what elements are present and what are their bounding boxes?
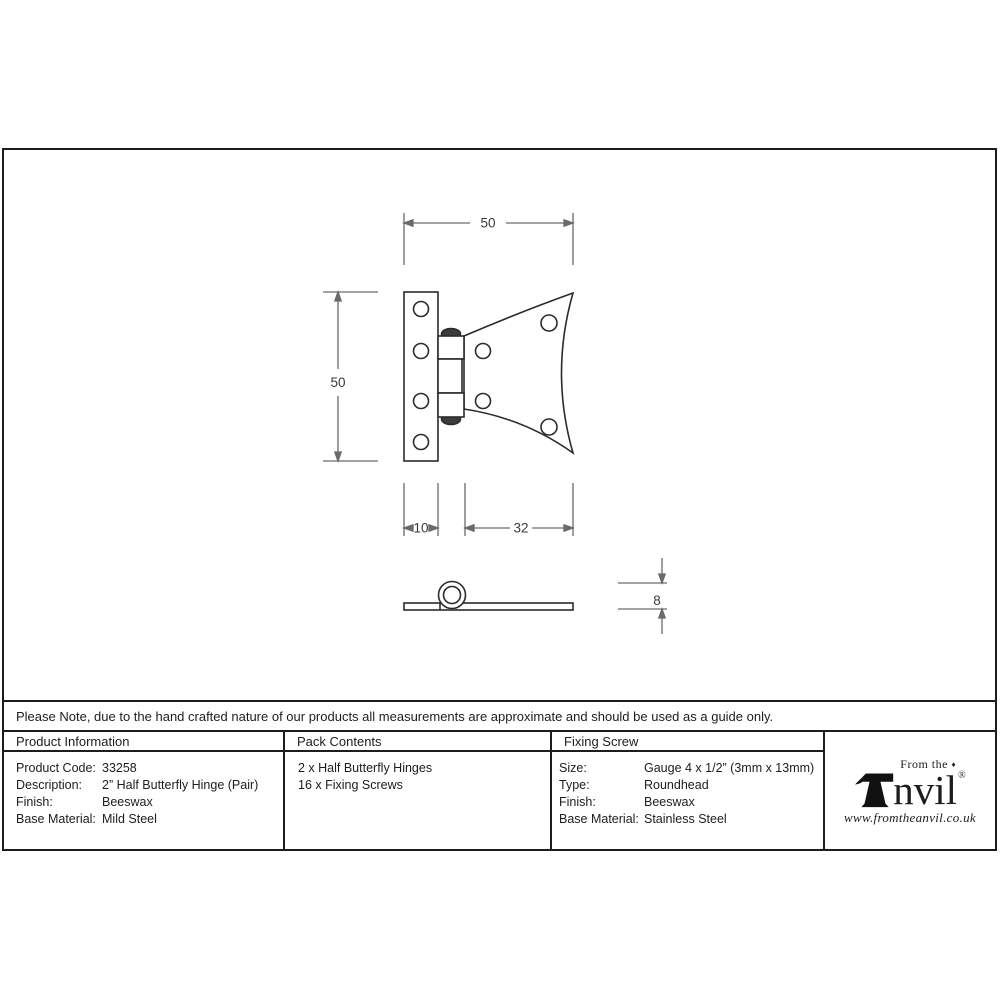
table-row: Finish: Beeswax	[552, 794, 823, 811]
dimension-top-width: 50	[480, 216, 495, 231]
finish-value: Beeswax	[102, 794, 153, 811]
registered-trademark-symbol: ®	[958, 770, 966, 781]
screw-hole	[414, 394, 429, 409]
product-information-header: Product Information	[4, 732, 283, 752]
logo-prefix: From the ♦	[900, 757, 956, 772]
product-code-value: 33258	[102, 760, 137, 777]
row-label: Type:	[559, 777, 644, 794]
hinge-side-view	[404, 582, 573, 611]
product-information-column: Product Information Product Code: 33258 …	[4, 732, 285, 849]
row-label: Product Code:	[16, 760, 102, 777]
screw-hole	[476, 344, 491, 359]
dimension-left-height: 50	[330, 375, 345, 390]
screw-finish-value: Beeswax	[644, 794, 695, 811]
table-row: Base Material: Mild Steel	[4, 811, 283, 828]
hinge-knuckle	[438, 336, 464, 359]
pack-item: 2 x Half Butterfly Hinges	[298, 760, 550, 777]
hinge-knuckle	[438, 359, 462, 393]
table-row: Product Code: 33258	[4, 760, 283, 777]
brand-logo-cell: From the ♦ nvil® www.fromtheanvil.co.uk	[825, 732, 995, 849]
table-row: Description: 2” Half Butterfly Hinge (Pa…	[4, 777, 283, 794]
screw-hole	[414, 435, 429, 450]
diamond-icon: ♦	[951, 760, 956, 769]
row-label: Base Material:	[16, 811, 102, 828]
pack-contents-column: Pack Contents 2 x Half Butterfly Hinges …	[285, 732, 552, 849]
screw-size-value: Gauge 4 x 1/2” (3mm x 13mm)	[644, 760, 814, 777]
from-the-anvil-logo: From the ♦ nvil® www.fromtheanvil.co.uk	[844, 758, 976, 826]
table-row: Size: Gauge 4 x 1/2” (3mm x 13mm)	[552, 760, 823, 777]
screw-hole	[476, 394, 491, 409]
description-value: 2” Half Butterfly Hinge (Pair)	[102, 777, 258, 794]
hinge-side-knuckle-inner	[444, 587, 461, 604]
fixing-screw-column: Fixing Screw Size: Gauge 4 x 1/2” (3mm x…	[552, 732, 825, 849]
row-label: Base Material:	[559, 811, 644, 828]
table-row: Type: Roundhead	[552, 777, 823, 794]
logo-wordmark: nvil	[893, 767, 957, 813]
fixing-screw-header: Fixing Screw	[552, 732, 823, 752]
row-label: Size:	[559, 760, 644, 777]
hinge-side-plate	[404, 603, 573, 610]
dimension-thickness: 8	[653, 593, 661, 608]
screw-hole	[414, 344, 429, 359]
technical-drawing-area: 50 50 10 32 8	[4, 150, 995, 700]
row-label: Finish:	[16, 794, 102, 811]
pack-contents-header: Pack Contents	[285, 732, 550, 752]
measurement-note: Please Note, due to the hand crafted nat…	[4, 700, 995, 732]
screw-hole	[414, 302, 429, 317]
screw-hole	[541, 419, 557, 435]
hinge-technical-drawing: 50 50 10 32 8	[4, 150, 995, 700]
spec-table: Product Information Product Code: 33258 …	[4, 732, 995, 849]
hinge-front-view	[404, 292, 573, 461]
dimension-wing-width: 32	[513, 521, 528, 536]
screw-hole	[541, 315, 557, 331]
anvil-icon	[854, 769, 896, 809]
table-row: Finish: Beeswax	[4, 794, 283, 811]
row-label: Description:	[16, 777, 102, 794]
row-label: Finish:	[559, 794, 644, 811]
dimension-lines	[323, 213, 667, 634]
pack-item: 16 x Fixing Screws	[298, 777, 550, 794]
table-row: Base Material: Stainless Steel	[552, 811, 823, 828]
screw-type-value: Roundhead	[644, 777, 709, 794]
note-text: Please Note, due to the hand crafted nat…	[16, 709, 773, 724]
hinge-knuckle	[438, 393, 464, 417]
screw-material-value: Stainless Steel	[644, 811, 727, 828]
product-sheet-frame: 50 50 10 32 8 Please Note, due to the ha…	[2, 148, 997, 851]
dimension-leaf-width: 10	[413, 521, 428, 536]
base-material-value: Mild Steel	[102, 811, 157, 828]
